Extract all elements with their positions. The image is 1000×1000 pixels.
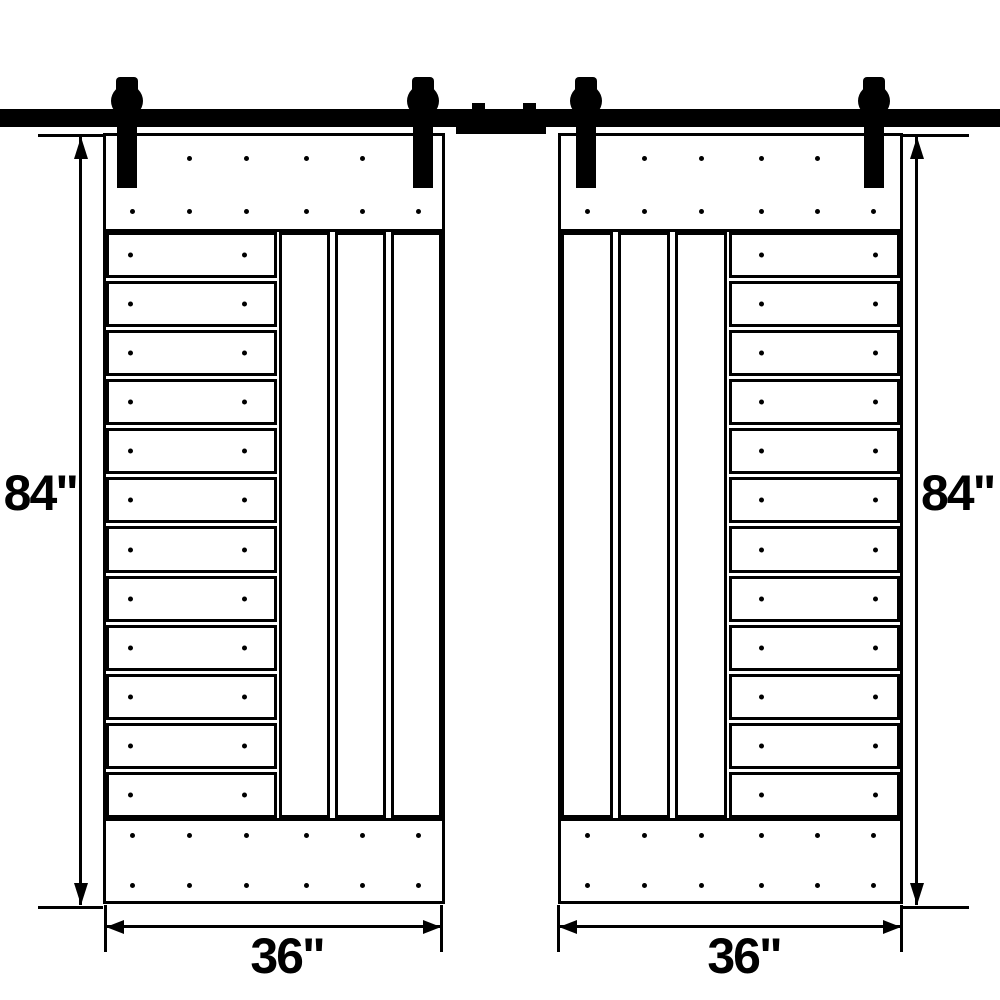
screw-dot <box>130 883 135 888</box>
door-top-rail-band <box>561 136 900 232</box>
screw-dot <box>244 883 249 888</box>
door-right <box>558 133 903 904</box>
screw-dot <box>360 209 365 214</box>
rail-connector-splice <box>456 127 546 134</box>
screw-dot <box>759 449 764 454</box>
screw-dot <box>242 694 247 699</box>
screw-dot <box>759 209 764 214</box>
height-label-left: 84" <box>0 468 77 518</box>
screw-dot <box>873 596 878 601</box>
screw-dot <box>759 351 764 356</box>
screw-dot <box>128 792 133 797</box>
horizontal-plank <box>729 379 900 425</box>
arrowhead-right-icon <box>883 920 901 934</box>
screw-dot <box>360 833 365 838</box>
barn-door-diagram: 84" 84" 36" 36" <box>0 0 1000 1000</box>
screw-dot <box>416 833 421 838</box>
arrowhead-up-icon <box>910 137 924 159</box>
vertical-board-group <box>279 232 442 818</box>
screw-dot <box>128 547 133 552</box>
screw-dot <box>304 833 309 838</box>
screw-dot <box>128 596 133 601</box>
horizontal-plank <box>729 526 900 572</box>
screw-dot <box>585 209 590 214</box>
horizontal-plank <box>729 772 900 818</box>
screw-dot <box>873 449 878 454</box>
dimension-line <box>915 137 918 905</box>
hanger-cap-icon <box>575 77 597 91</box>
screw-dot <box>242 547 247 552</box>
screw-dot <box>871 833 876 838</box>
screw-dot <box>128 253 133 258</box>
screw-dot <box>759 645 764 650</box>
screw-dot <box>128 694 133 699</box>
screw-dot <box>360 883 365 888</box>
vertical-board <box>618 232 670 818</box>
screw-dot <box>873 792 878 797</box>
screw-dot <box>699 833 704 838</box>
arrowhead-down-icon <box>74 883 88 905</box>
screw-dot <box>873 351 878 356</box>
horizontal-plank <box>106 772 277 818</box>
horizontal-plank <box>729 428 900 474</box>
screw-dot <box>871 883 876 888</box>
screw-dot <box>187 156 192 161</box>
track-rail-bar <box>0 109 1000 127</box>
screw-dot <box>759 302 764 307</box>
horizontal-plank-stack <box>106 232 277 818</box>
screw-dot <box>873 400 878 405</box>
hanger-cap-icon <box>412 77 434 91</box>
screw-dot <box>642 209 647 214</box>
screw-dot <box>242 596 247 601</box>
horizontal-plank <box>106 576 277 622</box>
screw-dot <box>873 743 878 748</box>
screw-dot <box>242 792 247 797</box>
screw-dot <box>871 209 876 214</box>
door-bottom-rail-band <box>561 818 900 901</box>
horizontal-plank <box>106 674 277 720</box>
height-label-right: 84" <box>921 468 994 518</box>
horizontal-plank <box>106 723 277 769</box>
screw-dot <box>304 883 309 888</box>
screw-dot <box>242 645 247 650</box>
screw-dot <box>187 209 192 214</box>
rail-connector-tab-right <box>523 103 536 110</box>
vertical-board <box>561 232 613 818</box>
screw-dot <box>128 449 133 454</box>
vertical-board <box>391 232 442 818</box>
screw-dot <box>244 156 249 161</box>
screw-dot <box>759 743 764 748</box>
horizontal-plank <box>106 330 277 376</box>
screw-dot <box>416 883 421 888</box>
screw-dot <box>873 253 878 258</box>
screw-dot <box>642 156 647 161</box>
horizontal-plank <box>106 625 277 671</box>
screw-dot <box>699 883 704 888</box>
screw-dot <box>304 156 309 161</box>
screw-dot <box>759 596 764 601</box>
screw-dot <box>759 792 764 797</box>
screw-dot <box>130 209 135 214</box>
horizontal-plank <box>106 232 277 278</box>
screw-dot <box>815 156 820 161</box>
screw-dot <box>128 498 133 503</box>
horizontal-plank-stack <box>729 232 900 818</box>
screw-dot <box>128 351 133 356</box>
width-label-right: 36" <box>684 931 804 981</box>
screw-dot <box>873 302 878 307</box>
screw-dot <box>759 253 764 258</box>
screw-dot <box>759 498 764 503</box>
screw-dot <box>244 833 249 838</box>
horizontal-plank <box>729 674 900 720</box>
screw-dot <box>873 547 878 552</box>
arrowhead-left-icon <box>559 920 577 934</box>
arrowhead-right-icon <box>423 920 441 934</box>
arrowhead-down-icon <box>910 883 924 905</box>
horizontal-plank <box>729 723 900 769</box>
dimension-line <box>79 137 82 905</box>
screw-dot <box>242 302 247 307</box>
screw-dot <box>304 209 309 214</box>
hanger-cap-icon <box>863 77 885 91</box>
horizontal-plank <box>106 379 277 425</box>
screw-dot <box>242 253 247 258</box>
arrowhead-up-icon <box>74 137 88 159</box>
screw-dot <box>128 743 133 748</box>
horizontal-plank <box>729 625 900 671</box>
extension-line-top <box>38 134 103 137</box>
door-bottom-rail-band <box>106 818 442 901</box>
screw-dot <box>128 645 133 650</box>
door-top-rail-band <box>106 136 442 232</box>
extension-line-bottom <box>38 906 103 909</box>
screw-dot <box>815 833 820 838</box>
screw-dot <box>759 833 764 838</box>
screw-dot <box>873 645 878 650</box>
horizontal-plank <box>729 232 900 278</box>
horizontal-plank <box>729 330 900 376</box>
extension-line-bottom <box>903 906 969 909</box>
screw-dot <box>585 883 590 888</box>
width-label-left: 36" <box>227 931 347 981</box>
screw-dot <box>873 694 878 699</box>
screw-dot <box>128 302 133 307</box>
horizontal-plank <box>106 428 277 474</box>
vertical-board-group <box>561 232 727 818</box>
screw-dot <box>815 883 820 888</box>
screw-dot <box>130 833 135 838</box>
screw-dot <box>242 400 247 405</box>
hanger-cap-icon <box>116 77 138 91</box>
door-middle-section <box>106 232 442 818</box>
horizontal-plank <box>106 477 277 523</box>
screw-dot <box>242 743 247 748</box>
screw-dot <box>699 156 704 161</box>
door-left <box>103 133 445 904</box>
screw-dot <box>642 833 647 838</box>
horizontal-plank <box>729 281 900 327</box>
screw-dot <box>759 883 764 888</box>
door-middle-section <box>561 232 900 818</box>
arrowhead-left-icon <box>106 920 124 934</box>
screw-dot <box>242 498 247 503</box>
screw-dot <box>759 694 764 699</box>
screw-dot <box>244 209 249 214</box>
horizontal-plank <box>106 281 277 327</box>
screw-dot <box>642 883 647 888</box>
screw-dot <box>759 400 764 405</box>
screw-dot <box>873 498 878 503</box>
rail-connector-tab-left <box>472 103 485 110</box>
screw-dot <box>759 547 764 552</box>
screw-dot <box>759 156 764 161</box>
screw-dot <box>242 449 247 454</box>
screw-dot <box>815 209 820 214</box>
horizontal-plank <box>106 526 277 572</box>
horizontal-plank <box>729 576 900 622</box>
vertical-board <box>675 232 727 818</box>
screw-dot <box>242 351 247 356</box>
screw-dot <box>360 156 365 161</box>
screw-dot <box>187 833 192 838</box>
screw-dot <box>585 833 590 838</box>
vertical-board <box>279 232 330 818</box>
horizontal-plank <box>729 477 900 523</box>
vertical-board <box>335 232 386 818</box>
screw-dot <box>416 209 421 214</box>
screw-dot <box>187 883 192 888</box>
screw-dot <box>699 209 704 214</box>
screw-dot <box>128 400 133 405</box>
